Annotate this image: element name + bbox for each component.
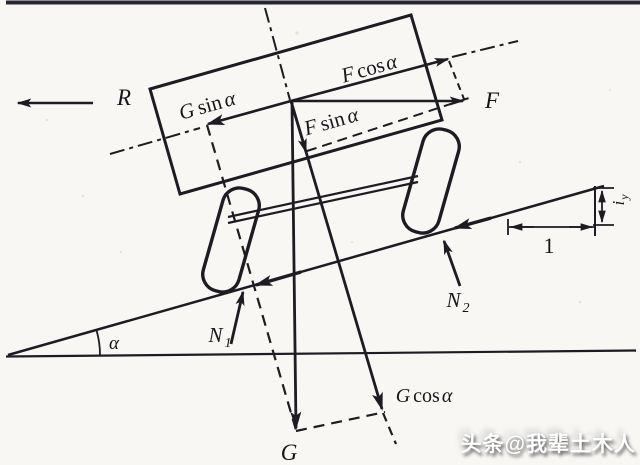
g-parallelogram-dashed xyxy=(296,412,385,431)
slope-axis-right-dashdot xyxy=(452,41,518,57)
label-alpha: α xyxy=(109,333,120,354)
label-G-cos-alpha: Gcosα xyxy=(396,385,453,407)
label-G: G xyxy=(281,440,298,465)
gcos-extension-dashed xyxy=(383,413,396,444)
slope-surface-line xyxy=(8,186,604,355)
label-N2: N2 xyxy=(445,288,469,316)
label-run-1: 1 xyxy=(544,233,555,258)
angle-arc xyxy=(97,331,100,356)
scan-noise xyxy=(46,31,611,303)
watermark: 头条@我辈土木人 xyxy=(461,428,636,458)
friction-arrow-rear-wheel xyxy=(455,218,491,228)
figure-canvas: R Gsinα Fcosα Fsinα F N1 N2 α G Gcosα 1 … xyxy=(0,0,640,465)
label-F-cos-alpha: Fcosα xyxy=(338,49,401,88)
slope-ratio-triangle xyxy=(508,186,614,236)
label-F-sin-alpha: Fsinα xyxy=(300,102,362,141)
label-N1: N1 xyxy=(207,323,231,351)
vehicle-body xyxy=(150,15,442,194)
force-arrow-G xyxy=(292,102,296,428)
label-F: F xyxy=(484,88,500,113)
force-arrow-N1 xyxy=(231,292,243,344)
force-arrow-N2 xyxy=(444,241,460,286)
label-R: R xyxy=(116,85,131,110)
rear-wheel xyxy=(399,125,463,237)
force-arrow-Gcos xyxy=(291,101,382,409)
incline-force-diagram: R Gsinα Fcosα Fsinα F N1 N2 α G Gcosα 1 … xyxy=(0,0,640,465)
label-iy: iy xyxy=(609,194,631,206)
slope-axis-left-dashdot xyxy=(110,128,200,154)
watermark-text: 头条@我辈土木人 xyxy=(461,433,636,456)
f-parallelogram-dashed-side xyxy=(449,61,464,99)
front-wheel xyxy=(199,184,263,296)
